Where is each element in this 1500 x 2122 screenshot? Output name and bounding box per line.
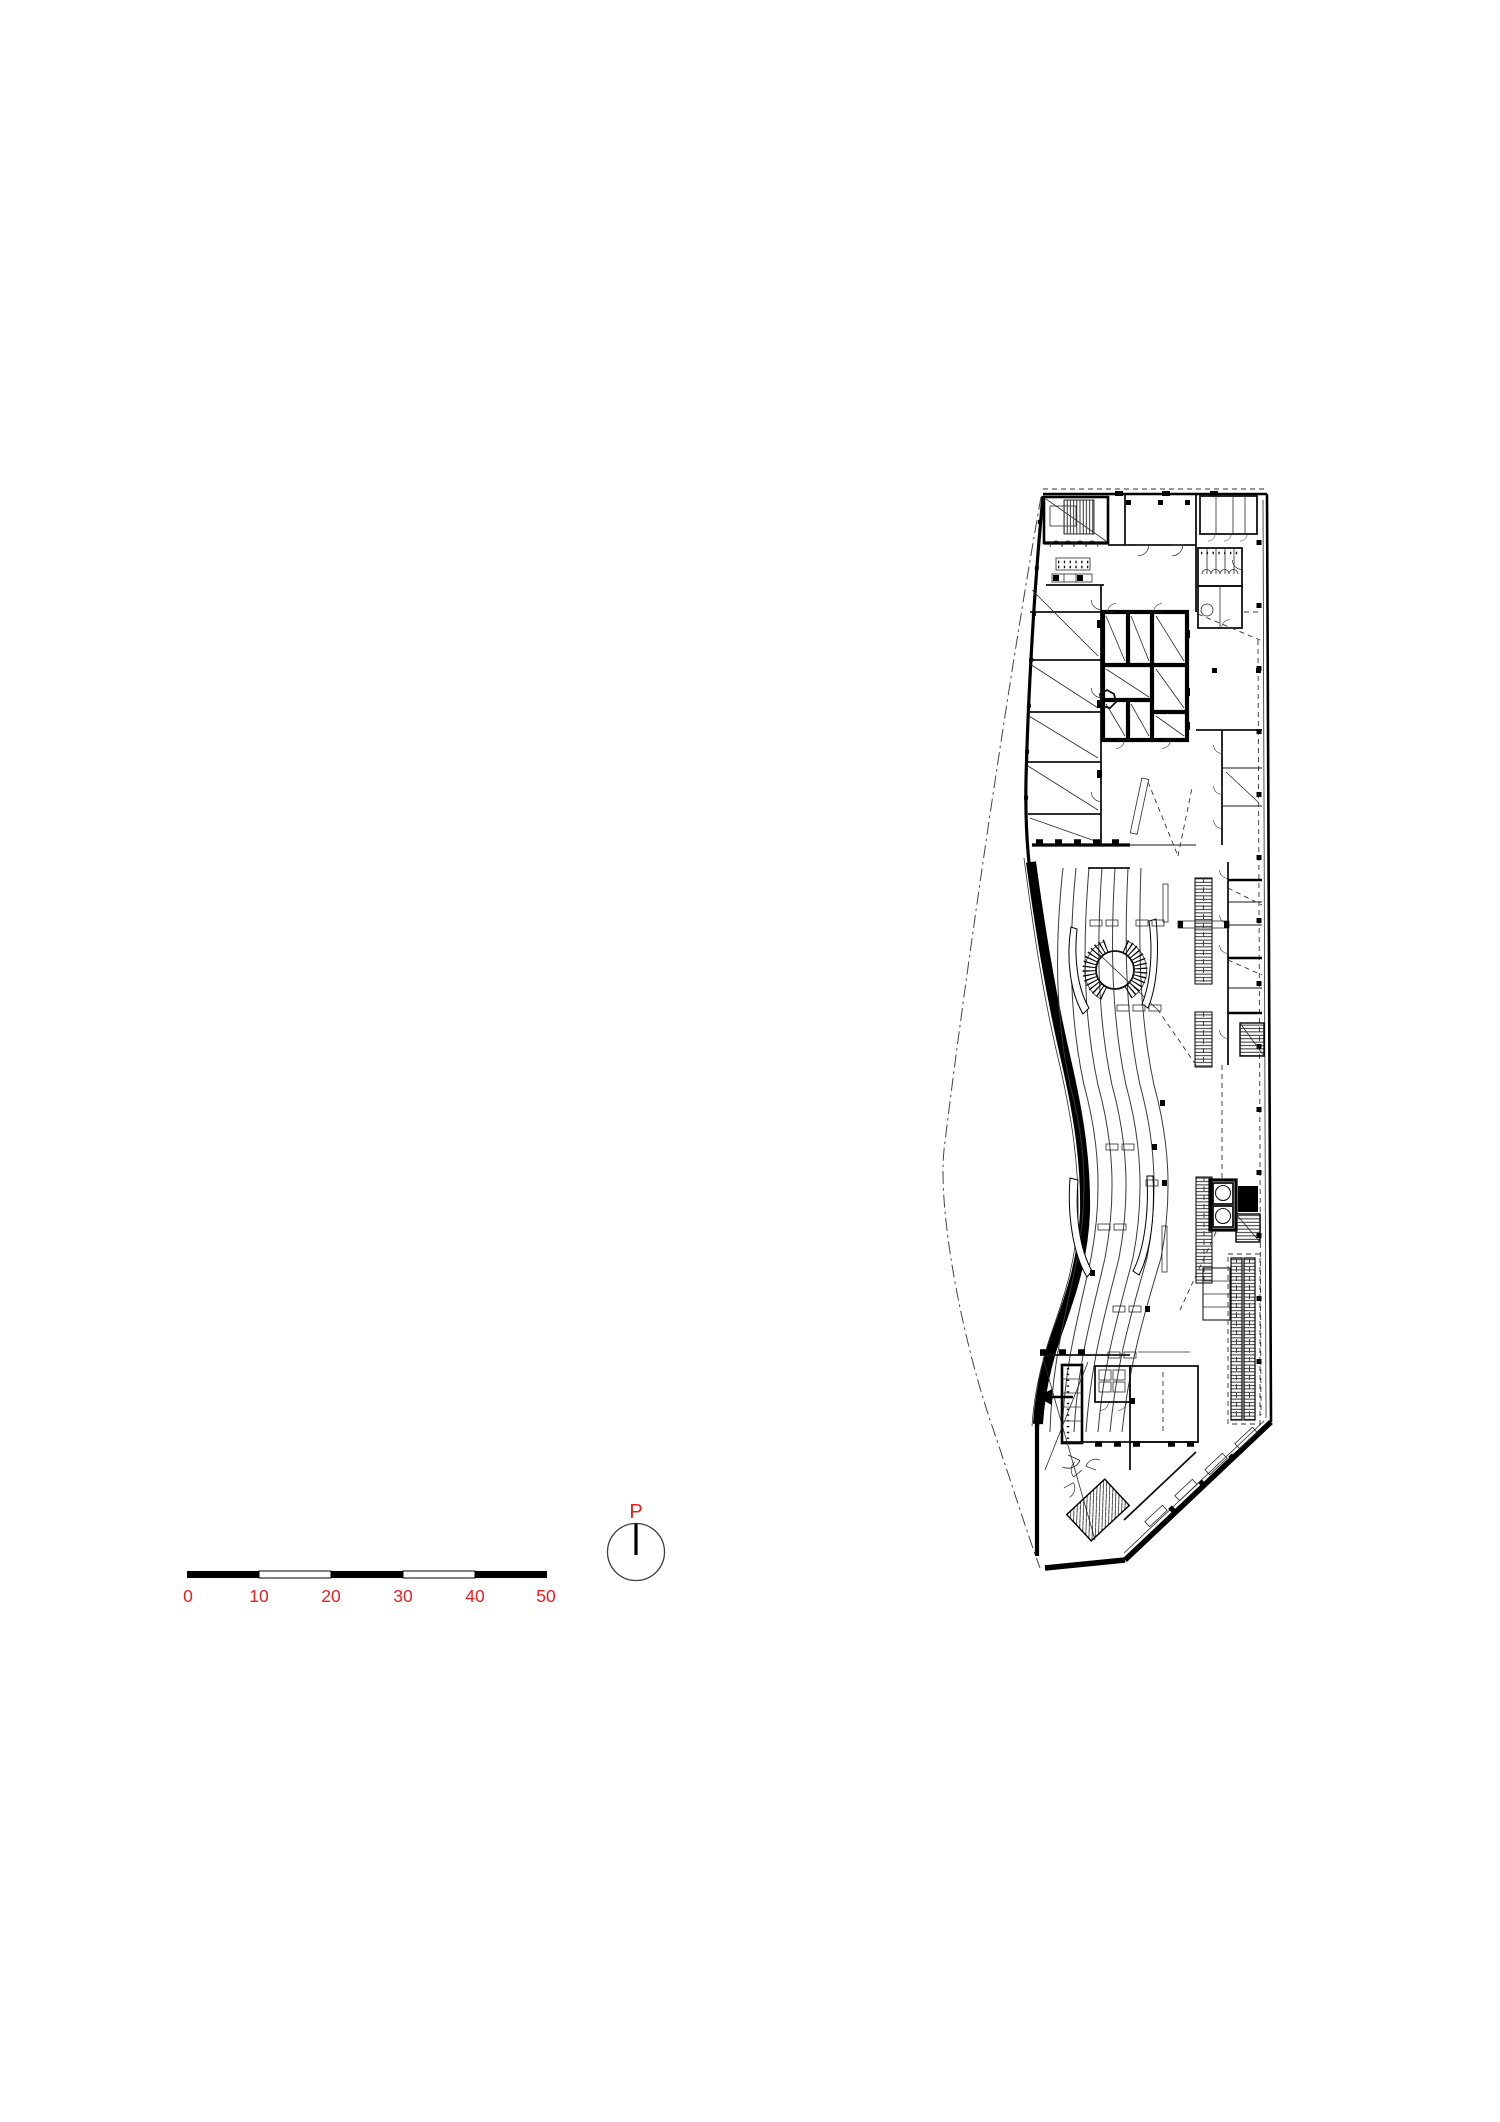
bench bbox=[1130, 778, 1148, 834]
mid-band bbox=[1032, 778, 1196, 868]
elevator-bank bbox=[1210, 1180, 1236, 1230]
scale-segment-0-10 bbox=[187, 1571, 259, 1578]
west-facade-wall bbox=[1024, 496, 1086, 1552]
scale-label-30: 30 bbox=[393, 1586, 413, 1606]
toilet-block-north bbox=[1198, 548, 1262, 640]
east-stair bbox=[1240, 1023, 1264, 1056]
compass-label: P bbox=[629, 1501, 642, 1523]
floor-plan-drawing: 0 10 20 30 40 50 P bbox=[0, 0, 1500, 2122]
toilet-block-south bbox=[1062, 1365, 1082, 1443]
west-room-stack bbox=[1026, 585, 1102, 845]
scale-segment-40-50 bbox=[475, 1571, 547, 1578]
central-core bbox=[1100, 604, 1190, 749]
escalator bbox=[1231, 1258, 1255, 1420]
scale-segment-10-20 bbox=[259, 1571, 331, 1578]
site-boundary-line bbox=[943, 497, 1041, 1568]
east-rooms bbox=[1196, 668, 1264, 1065]
scale-bar: 0 10 20 30 40 50 bbox=[183, 1571, 556, 1606]
elevator-1-icon bbox=[1216, 1186, 1231, 1201]
shelving-units bbox=[1178, 878, 1230, 1320]
scale-label-10: 10 bbox=[249, 1586, 269, 1606]
scale-label-0: 0 bbox=[183, 1586, 193, 1606]
elevator-2-icon bbox=[1216, 1209, 1231, 1224]
vertical-circulation bbox=[1158, 1010, 1260, 1424]
scale-segment-30-40 bbox=[403, 1571, 475, 1578]
scale-label-20: 20 bbox=[321, 1586, 341, 1606]
scale-label-40: 40 bbox=[465, 1586, 485, 1606]
north-rooms bbox=[1108, 491, 1257, 612]
north-compass: P bbox=[608, 1501, 665, 1581]
northwest-stair-block bbox=[1044, 497, 1108, 585]
scale-label-50: 50 bbox=[536, 1586, 556, 1606]
scale-segment-20-30 bbox=[331, 1571, 403, 1578]
south-hall-room bbox=[1130, 1366, 1198, 1442]
drawing-sheet: 0 10 20 30 40 50 P bbox=[0, 0, 1500, 2122]
south-stair bbox=[1067, 1479, 1130, 1541]
